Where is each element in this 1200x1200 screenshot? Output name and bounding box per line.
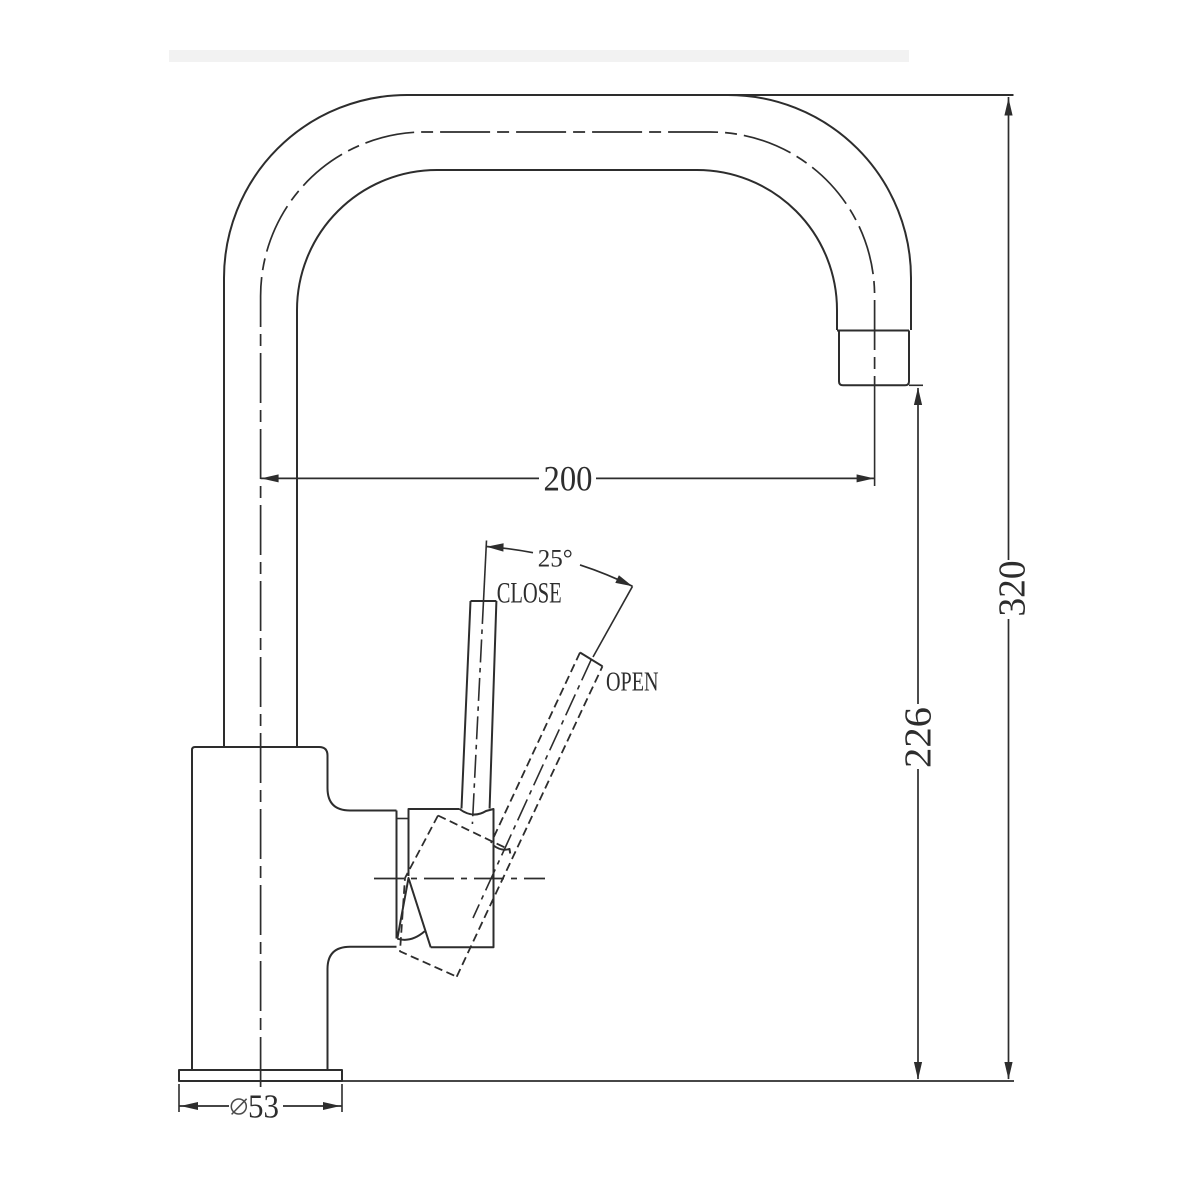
svg-text:53: 53 [248, 1089, 279, 1126]
svg-text:25°: 25° [538, 546, 573, 573]
svg-text:CLOSE: CLOSE [497, 577, 562, 610]
svg-text:OPEN: OPEN [606, 667, 659, 697]
svg-text:200: 200 [544, 459, 593, 499]
svg-text:226: 226 [898, 707, 940, 768]
svg-text:320: 320 [992, 561, 1034, 617]
